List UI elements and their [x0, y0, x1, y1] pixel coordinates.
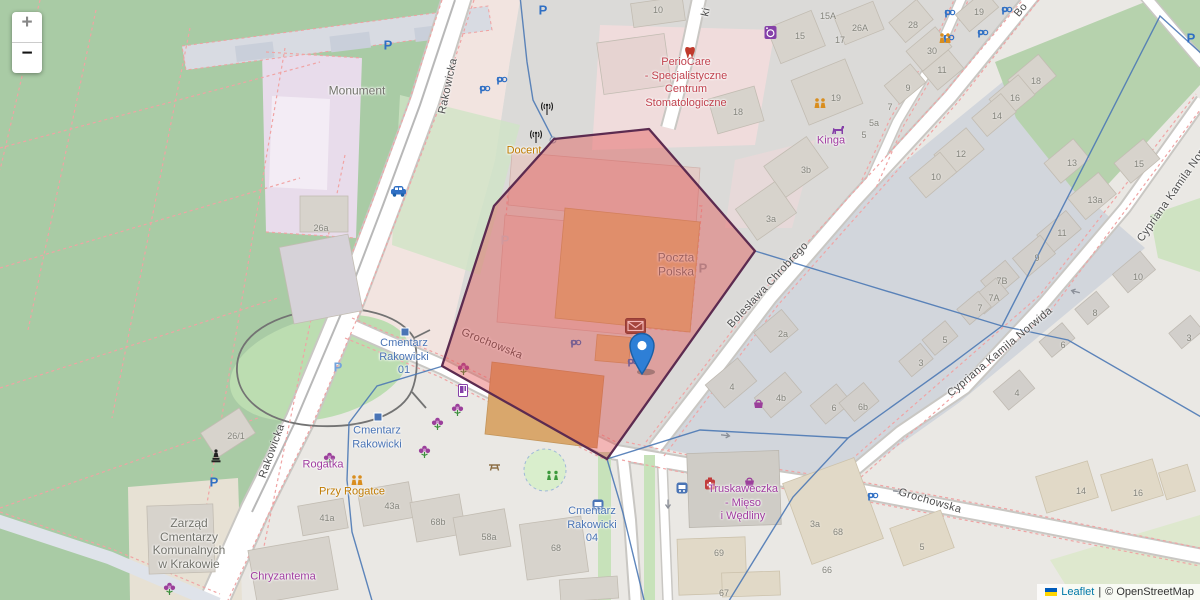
attribution-bar: Leaflet | © OpenStreetMap: [1037, 584, 1200, 600]
zoom-out-button[interactable]: −: [12, 43, 42, 73]
zoom-control: + −: [12, 12, 42, 73]
ukraine-flag-icon: [1045, 588, 1057, 596]
attribution-separator: |: [1098, 586, 1101, 598]
map-canvas[interactable]: PPPPPPPPPPPPPPPP RakowickaRakowickaGroch…: [0, 0, 1200, 600]
tile-layer: [0, 0, 1200, 600]
openstreetmap-link[interactable]: © OpenStreetMap: [1105, 586, 1194, 598]
marker-pin: [630, 334, 654, 375]
leaflet-link[interactable]: Leaflet: [1061, 586, 1094, 598]
zoom-in-button[interactable]: +: [12, 12, 42, 43]
marker-dot: [637, 341, 646, 350]
